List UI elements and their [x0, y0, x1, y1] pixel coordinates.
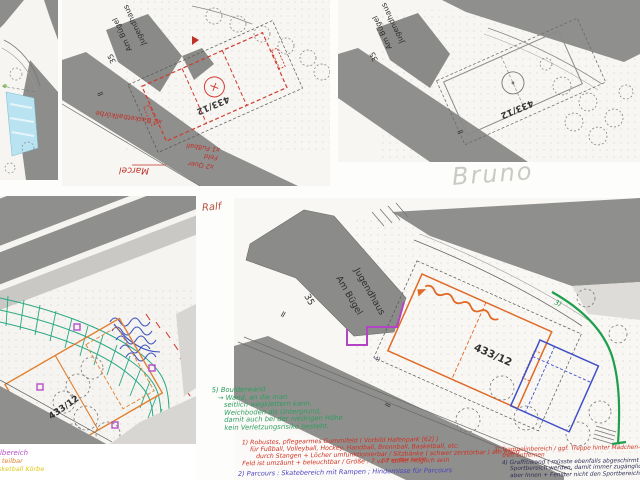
- panel-marcel: 433/12 Jugendhaus Am Bügel 35 = x2 Baske…: [62, 0, 330, 186]
- author-name-marcel: Marcel: [118, 164, 149, 175]
- panel-fragment-top-left: [0, 0, 58, 180]
- scanned-plan-collage: 433/12 Jugendhaus Am Bügel 35 = x2 Baske…: [0, 0, 640, 480]
- road-shape: [44, 0, 58, 40]
- cutoff-note-orange: l teilbar: [0, 457, 24, 465]
- author-name-bruno: Bruno: [451, 157, 534, 191]
- author-name-ralf: Ralf: [202, 201, 222, 214]
- note-gummifeld: 1) Robustes, pflegearmes Gummifeld ( Vor…: [242, 436, 520, 469]
- road-shape: [0, 0, 24, 28]
- note-graffitiwand: 4) Graffitiwand ( müsste ebenfalls abges…: [502, 458, 640, 480]
- marcel-plan-drawing: 433/12 Jugendhaus Am Bügel 35 = x2 Baske…: [62, 0, 330, 186]
- panel-bottom-left: 433/12 llbereich l teilbar sketball Körb…: [0, 196, 196, 480]
- pool-highlight: [6, 92, 38, 156]
- tree-icon: [5, 163, 15, 173]
- fragment-plan-drawing: [0, 0, 58, 180]
- bruno-plan-drawing: 433/12 Jugendhaus Am Bügel 35 =: [338, 0, 640, 162]
- page-margin: [0, 444, 196, 480]
- cutoff-note-magenta: llbereich: [0, 449, 28, 457]
- road-mark: =: [278, 309, 290, 321]
- cutoff-note-yellow: sketball Körbe: [0, 465, 44, 473]
- note-boulderwand: 5) Boulderwand → Wand, an die man seitli…: [212, 385, 343, 433]
- panel-bruno: 433/12 Jugendhaus Am Bügel 35 =: [338, 0, 640, 162]
- bottom-left-plan-drawing: 433/12 llbereich l teilbar sketball Körb…: [0, 196, 196, 480]
- tree-icon: [10, 68, 22, 80]
